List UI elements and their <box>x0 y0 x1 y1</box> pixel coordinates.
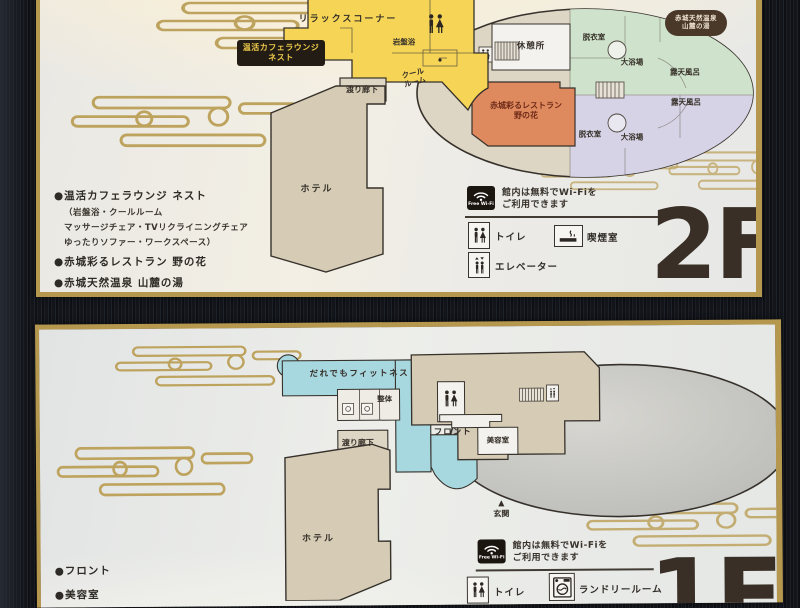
rotenburo-top-label: 露天風呂 <box>670 67 700 76</box>
smoking-room-icon <box>554 225 583 247</box>
bath-zone-green-region <box>570 0 756 95</box>
free-wifi-label: Free Wi-Fi <box>468 203 494 208</box>
floor2-directory: ●温活カフェラウンジ ネスト （岩盤浴・クールルーム マッサージチェア・TVリク… <box>54 182 248 290</box>
elevator-label: エレベーター <box>495 259 558 273</box>
directory-item: ●美容室 <box>55 587 111 602</box>
map-elevator-icon <box>546 385 558 401</box>
floor2-panel: リラックスコーナー 岩盤浴 クール ルーム 渡り廊下 ホテル 休憩所 脱衣室 大… <box>40 0 756 292</box>
onsen-badge-line2: 山麓の湯 <box>682 23 710 31</box>
floor1-panel: だれでもフィットネス 整体 渡り廊下 フロント 美容室 ホテル ▲ 玄関 ●フロ… <box>39 324 777 607</box>
wifi-notice-line2: ご利用できます <box>502 199 597 211</box>
toilet-icon <box>468 222 490 249</box>
restaurant-line1: 赤城彩るレストラン <box>490 101 562 111</box>
directory-item: ●フロント <box>55 563 111 578</box>
beauty-label: 美容室 <box>487 436 510 446</box>
toilet-label: トイレ <box>495 229 527 243</box>
floor1-directory: ●フロント ●美容室 <box>55 557 111 602</box>
ganbanyoku-label: 岩盤浴 <box>393 37 416 46</box>
entrance-marker: ▲ <box>498 498 504 508</box>
hotel-region <box>285 444 391 601</box>
fitness-label: だれでもフィットネス <box>310 369 410 380</box>
hotel-label: ホテル <box>302 534 335 545</box>
dressing-room-bottom-label: 脱衣室 <box>579 129 602 138</box>
directory-note: マッサージチェア・TVリクライニングチェア <box>64 221 248 233</box>
free-wifi-icon: Free Wi-Fi <box>467 186 495 210</box>
nest-badge-line2: ネスト <box>268 53 294 63</box>
bath-tub-icon <box>608 41 626 59</box>
entrance-label: 玄関 <box>493 509 509 519</box>
nest-lounge-badge: 温活カフェラウンジ ネスト <box>237 40 325 66</box>
wifi-notice-line1: 館内は無料でWi-Fiを <box>513 540 608 553</box>
front-label: フロント <box>434 427 472 438</box>
onsen-badge: 赤城天然温泉 山麓の湯 <box>665 10 727 36</box>
free-wifi-label: Free Wi-Fi <box>479 556 505 561</box>
elevator-icon <box>468 252 490 278</box>
wifi-notice-line1: 館内は無料でWi-Fiを <box>502 187 597 199</box>
nest-badge-line1: 温活カフェラウンジ <box>243 43 320 53</box>
bath-top-label: 大浴場 <box>621 57 644 66</box>
directory-item: ●赤城彩るレストラン 野の花 <box>54 254 248 269</box>
dressing-room-top-label: 脱衣室 <box>583 32 606 41</box>
legend-divider <box>465 216 658 218</box>
floor2-sign: リラックスコーナー 岩盤浴 クール ルーム 渡り廊下 ホテル 休憩所 脱衣室 大… <box>36 0 762 297</box>
hotel-label: ホテル <box>300 184 333 195</box>
rest-area-label: 休憩所 <box>517 42 546 53</box>
directory-item: ●赤城天然温泉 山麓の湯 <box>54 275 248 290</box>
bath-bottom-label: 大浴場 <box>621 132 644 141</box>
smoking-room-label: 喫煙室 <box>587 230 619 244</box>
directory-note: ゆったりソファー・ワークスペース） <box>64 236 248 248</box>
relax-corner-label: リラックスコーナー <box>299 14 398 25</box>
wifi-notice: 館内は無料でWi-Fiを ご利用できます <box>513 540 608 565</box>
floor1-sign: だれでもフィットネス 整体 渡り廊下 フロント 美容室 ホテル ▲ 玄関 ●フロ… <box>35 319 783 607</box>
rotenburo-bottom-label: 露天風呂 <box>671 97 701 106</box>
corridor-label: 渡り廊下 <box>346 85 378 95</box>
corridor-label: 渡り廊下 <box>342 438 374 448</box>
free-wifi-icon: Free Wi-Fi <box>478 539 506 563</box>
directory-item: ●温活カフェラウンジ ネスト <box>54 188 248 203</box>
laundry-room-icon <box>549 573 575 601</box>
seitai-label: 整体 <box>377 394 392 403</box>
restaurant-line2: 野の花 <box>490 111 562 121</box>
floor1-number: 1F <box>649 552 777 607</box>
stairs-icon <box>519 388 543 401</box>
wifi-notice-line2: ご利用できます <box>513 552 608 565</box>
restaurant-label: 赤城彩るレストラン 野の花 <box>490 101 562 121</box>
wifi-notice: 館内は無料でWi-Fiを ご利用できます <box>502 187 597 211</box>
bath-tub-icon <box>608 114 626 132</box>
floor2-number: 2F <box>650 204 756 286</box>
toilet-label: トイレ <box>494 584 526 598</box>
directory-note: （岩盤浴・クールルーム <box>64 206 248 218</box>
hotel-region <box>271 86 385 272</box>
